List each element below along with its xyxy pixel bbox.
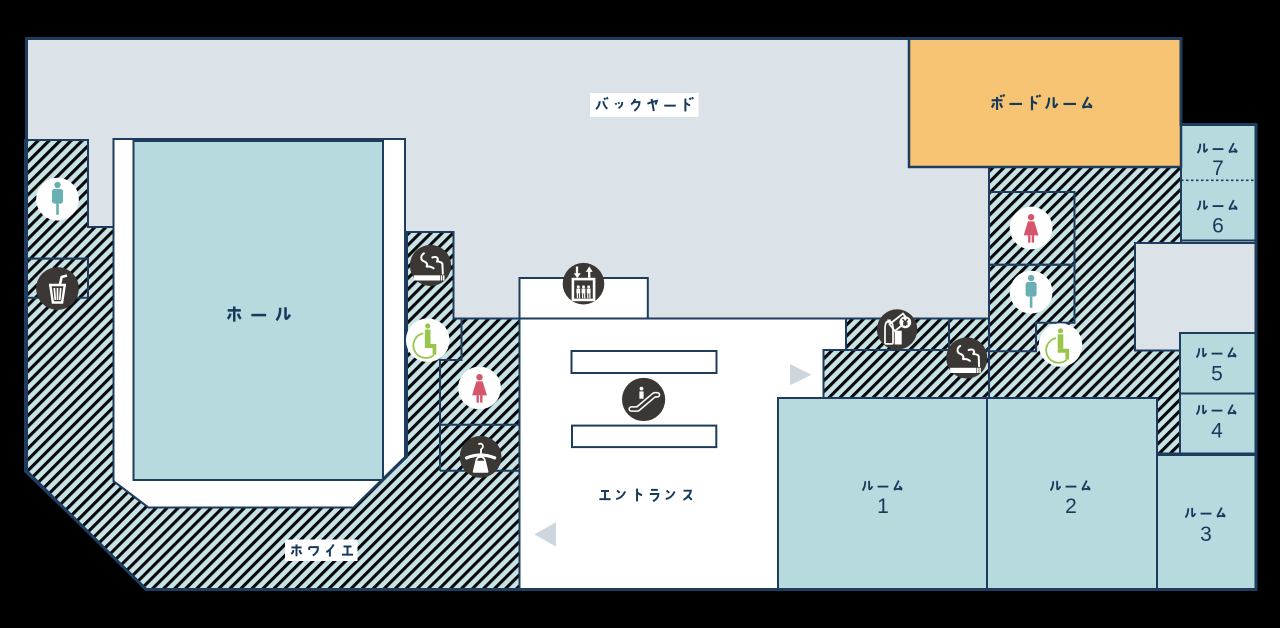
svg-text:6: 6 <box>1212 215 1224 238</box>
svg-text:3: 3 <box>1200 523 1212 546</box>
svg-text:2: 2 <box>1065 495 1077 518</box>
svg-text:4: 4 <box>1211 420 1223 443</box>
svg-text:1: 1 <box>877 495 889 518</box>
svg-text:5: 5 <box>1211 363 1223 386</box>
svg-text:7: 7 <box>1212 157 1224 180</box>
